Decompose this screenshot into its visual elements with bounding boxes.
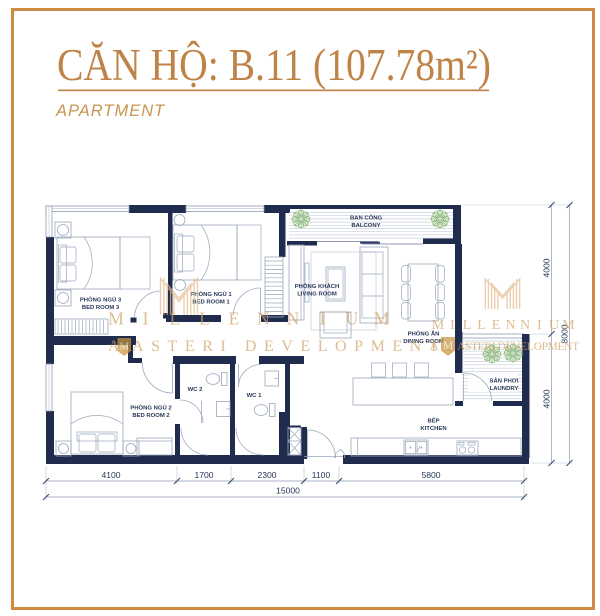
svg-text:I: I: [450, 318, 455, 333]
svg-text:M: M: [374, 309, 390, 329]
svg-text:BED ROOM 2: BED ROOM 2: [132, 413, 170, 419]
svg-text:L: L: [477, 318, 486, 333]
svg-text:KITCHEN: KITCHEN: [420, 426, 446, 432]
svg-text:M: M: [443, 340, 453, 352]
svg-text:N: N: [520, 318, 530, 333]
svg-text:N: N: [505, 318, 515, 333]
svg-text:SÂN PHƠI: SÂN PHƠI: [490, 378, 519, 385]
svg-text:1700: 1700: [194, 470, 213, 480]
svg-text:A: A: [108, 338, 120, 355]
svg-text:PHÒNG NGỦ 2: PHÒNG NGỦ 2: [130, 404, 172, 412]
svg-text:APARTMENT: APARTMENT: [55, 102, 166, 120]
svg-text:ASTERI DEVELOPMENT: ASTERI DEVELOPMENT: [457, 341, 579, 353]
svg-text:4000: 4000: [542, 258, 552, 277]
svg-text:M: M: [119, 341, 129, 353]
svg-text:U: U: [549, 318, 559, 333]
svg-text:PHÒNG NGỦ 3: PHÒNG NGỦ 3: [80, 296, 122, 304]
svg-text:I: I: [143, 309, 149, 329]
svg-text:L: L: [170, 309, 181, 329]
svg-text:E: E: [229, 309, 240, 329]
svg-text:15000: 15000: [276, 486, 300, 496]
svg-text:I: I: [320, 309, 326, 329]
svg-text:I: I: [537, 318, 542, 333]
svg-text:U: U: [346, 309, 359, 329]
svg-text:BAN CÔNG: BAN CÔNG: [350, 214, 382, 222]
svg-text:E: E: [492, 318, 501, 333]
svg-text:M: M: [432, 318, 445, 333]
svg-text:WC 1: WC 1: [247, 393, 262, 399]
svg-text:4000: 4000: [542, 389, 552, 408]
svg-text:2300: 2300: [257, 470, 276, 480]
svg-text:L: L: [199, 309, 210, 329]
svg-text:PHÒNG NGỦ 1: PHÒNG NGỦ 1: [190, 290, 232, 298]
svg-text:PHÒNG KHÁCH: PHÒNG KHÁCH: [295, 282, 340, 290]
svg-text:N: N: [287, 309, 300, 329]
svg-text:BALCONY: BALCONY: [351, 223, 380, 229]
svg-text:BẾP: BẾP: [427, 418, 439, 425]
svg-text:1100: 1100: [312, 470, 331, 480]
svg-text:ASTERI DEVELOPMENT: ASTERI DEVELOPMENT: [132, 338, 446, 355]
svg-text:LAUNDRY: LAUNDRY: [490, 386, 519, 392]
svg-text:WC 2: WC 2: [188, 387, 203, 393]
svg-text:M: M: [562, 318, 575, 333]
svg-text:CĂN HỘ: B.11 (107.78m²): CĂN HỘ: B.11 (107.78m²): [57, 40, 491, 90]
svg-text:M: M: [108, 309, 124, 329]
svg-text:N: N: [257, 309, 270, 329]
svg-text:5800: 5800: [421, 470, 440, 480]
svg-text:A: A: [430, 339, 439, 353]
svg-text:4100: 4100: [101, 470, 120, 480]
svg-text:LIVING ROOM: LIVING ROOM: [297, 292, 337, 298]
svg-text:L: L: [463, 318, 472, 333]
